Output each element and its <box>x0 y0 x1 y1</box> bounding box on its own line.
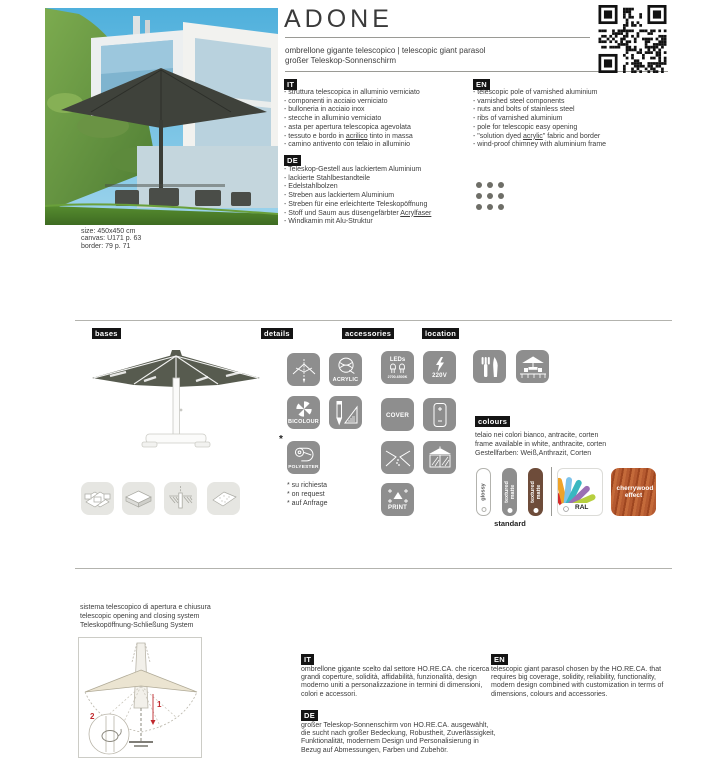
standard-label: standard <box>476 519 544 528</box>
list-item: - ribs of varnished aluminium <box>473 115 606 124</box>
description-en-text: telescopic giant parasol chosen by the H… <box>491 666 679 699</box>
textured-corten-label: textured matte <box>530 481 542 503</box>
rain-gutter-tile <box>381 441 414 474</box>
subtitle-it-en: ombrellone gigante telescopico | telesco… <box>285 46 485 55</box>
slab-base-icon <box>125 489 152 509</box>
features-en-list: - telescopic pole of varnished aluminium… <box>473 89 606 150</box>
catalog-page: ADONE ombrellone gigante telescopico | t… <box>0 0 725 760</box>
swatch-divider <box>551 467 552 516</box>
diagram-marker-1: 1 <box>157 700 161 709</box>
colours-desc-it: telaio nei colori bianco, antracite, cor… <box>475 431 606 440</box>
telescopic-system-caption: sistema telescopico di apertura e chiusu… <box>80 604 211 630</box>
list-item: - "solution dyed acrylic" fabric and bor… <box>473 133 606 142</box>
cherrywood-label: cherrywood effect <box>617 485 651 499</box>
features-de-list: - Teleskop-Gestell aus lackiertem Alumin… <box>284 166 431 227</box>
list-item: - Teleskop-Gestell aus lackiertem Alumin… <box>284 166 431 175</box>
swatch-hole <box>507 508 512 513</box>
bicolour-label: BICOLOUR <box>288 419 319 425</box>
list-item: - telescopic pole of varnished aluminium <box>473 89 606 98</box>
details-section-label: details <box>261 328 293 339</box>
list-item: * auf Anfrage <box>287 500 327 509</box>
location-section-label: location <box>422 328 459 339</box>
list-item: - Streben aus lackiertem Aluminium <box>284 192 431 201</box>
print-label: PRINT <box>388 505 407 511</box>
yarn-ball-icon <box>336 356 356 376</box>
battery-tile <box>423 398 456 431</box>
umbrella-illustration <box>90 348 262 454</box>
voltage-label: 220V <box>432 373 447 379</box>
swatch-glossy: glossy <box>476 468 491 516</box>
colours-section-label: colours <box>475 416 510 427</box>
umbrella-drawing <box>90 348 262 459</box>
polyester-tile: POLYESTER <box>287 441 320 474</box>
lightning-icon <box>434 357 446 372</box>
title-rule <box>285 37 590 38</box>
rain-gutter-icon <box>385 446 411 470</box>
telescopic-line-it: sistema telescopico di apertura e chiusu… <box>80 604 211 613</box>
ground-anchor-icon <box>167 485 194 512</box>
features-it-list: - struttura telescopica in alluminio ver… <box>284 89 420 150</box>
fabric-rolls-icon <box>293 446 315 464</box>
structure-tile <box>287 353 320 386</box>
caption-border: border: 79 p. 71 <box>81 243 141 250</box>
caption-canvas: canvas: U171 p. 63 <box>81 235 141 242</box>
list-item: - wind-proof chimney with aluminium fram… <box>473 141 606 150</box>
cross-base-icon <box>84 488 111 510</box>
base-cross-tile <box>81 482 114 515</box>
telescopic-structure-icon <box>291 357 317 383</box>
list-item: - lackierte Stahlbestandteile <box>284 175 431 184</box>
pinwheel-icon <box>294 400 314 418</box>
swatch-textured-corten: textured matte <box>528 468 543 516</box>
print-stars-icon <box>386 488 410 504</box>
led-bulbs-icon <box>389 363 407 375</box>
led-tile: LEDs 2700-6500K <box>381 351 414 384</box>
terrace-cafe-icon <box>519 355 547 379</box>
bases-section-label: bases <box>92 328 121 339</box>
swatch-textured-grey: textured matte <box>502 468 517 516</box>
terrace-tile <box>516 350 549 383</box>
qr-code <box>598 5 667 73</box>
list-item: - Edelstahlbolzen <box>284 183 431 192</box>
list-item: - nuts and bolts of stainless steel <box>473 106 606 115</box>
description-de-label: DE <box>301 710 318 721</box>
pavilion-icon <box>427 446 453 470</box>
list-item: - struttura telescopica in alluminio ver… <box>284 89 420 98</box>
bicolour-tile: BICOLOUR <box>287 396 320 429</box>
list-item: - Windkamin mit Alu-Struktur <box>284 218 431 227</box>
telescopic-line-en: telescopic opening and closing system <box>80 613 211 622</box>
colours-desc-en: frame available in white, anthracite, co… <box>475 440 606 449</box>
list-item: - stecche in alluminio verniciato <box>284 115 420 124</box>
telescopic-diagram: 1 2 <box>78 637 202 758</box>
description-en-label: EN <box>491 654 508 665</box>
battery-icon <box>432 402 448 428</box>
polyester-asterisk: * <box>279 434 283 445</box>
custom-design-tile <box>329 396 362 429</box>
telescopic-line-de: Teleskopöffnung-Schließung System <box>80 622 211 631</box>
caption-size: size: 450x450 cm <box>81 228 141 235</box>
polyester-label: POLYESTER <box>288 465 318 470</box>
base-ground-tile <box>164 482 197 515</box>
base-slab-tile <box>122 482 155 515</box>
list-item: - pole for telescopic easy opening <box>473 124 606 133</box>
page-title: ADONE <box>284 5 393 34</box>
subtitle-de: großer Teleskop-Sonnenschirm <box>285 56 396 65</box>
led-range: 2700-6500K <box>388 375 408 379</box>
cover-tile: COVER <box>381 398 414 431</box>
cover-label: COVER <box>386 412 409 419</box>
list-item: - Streben für eine erleichterte Teleskop… <box>284 201 431 210</box>
photo-caption: size: 450x450 cm canvas: U171 p. 63 bord… <box>81 228 141 250</box>
diagram-marker-2: 2 <box>90 712 94 721</box>
restaurant-tile <box>473 350 506 383</box>
pavilion-tile <box>423 441 456 474</box>
membrane-base-icon <box>210 490 238 508</box>
product-photo <box>45 8 278 225</box>
voltage-tile: 220V <box>423 351 456 384</box>
list-item: - tessuto e bordo in acrilico tinto in m… <box>284 133 420 142</box>
on-request-notes: * su richiesta* on request* auf Anfrage <box>287 482 327 508</box>
pencil-ruler-icon <box>333 400 359 426</box>
description-it-text: ombrellone gigante scelto dal settore HO… <box>301 666 493 699</box>
list-item: - componenti in acciaio verniciato <box>284 98 420 107</box>
section-rule-bottom <box>75 568 672 569</box>
list-item: - varnished steel components <box>473 98 606 107</box>
acrylic-label: ACRYLIC <box>333 377 359 383</box>
list-item: * su richiesta <box>287 482 327 491</box>
list-item: * on request <box>287 491 327 500</box>
swatch-hole <box>481 507 486 512</box>
villa-terrace-photo <box>45 8 278 225</box>
acrylic-tile: ACRYLIC <box>329 353 362 386</box>
swatch-hole <box>533 508 538 513</box>
cherrywood-swatch: cherrywood effect <box>611 468 656 516</box>
textured-grey-label: textured matte <box>504 481 516 503</box>
list-item: - Stoff und Saum aus düsengefärbter Acry… <box>284 210 431 219</box>
description-it-label: IT <box>301 654 314 665</box>
colours-description: telaio nei colori bianco, antracite, cor… <box>475 431 606 458</box>
fork-knife-icon <box>479 355 501 379</box>
list-item: - camino antivento con telaio in allumin… <box>284 141 420 150</box>
print-tile: PRINT <box>381 483 414 516</box>
section-rule-top <box>75 320 672 321</box>
opening-system-drawing <box>79 638 201 757</box>
features-de-label: DE <box>284 155 301 166</box>
base-membrane-tile <box>207 482 240 515</box>
dots-grid-decoration <box>476 182 504 210</box>
ral-label: RAL <box>575 504 588 511</box>
description-de-text: großer Teleskop-Sonnenschirm von HO.RE.C… <box>301 722 497 755</box>
list-item: - bulloneria in acciaio inox <box>284 106 420 115</box>
colours-desc-de: Gestellfarben: Weiß,Anthrazit, Corten <box>475 449 606 458</box>
accessories-section-label: accessories <box>342 328 394 339</box>
glossy-label: glossy <box>481 483 487 500</box>
ral-fan-card: RAL <box>557 468 603 516</box>
list-item: - asta per apertura telescopica agevolat… <box>284 124 420 133</box>
